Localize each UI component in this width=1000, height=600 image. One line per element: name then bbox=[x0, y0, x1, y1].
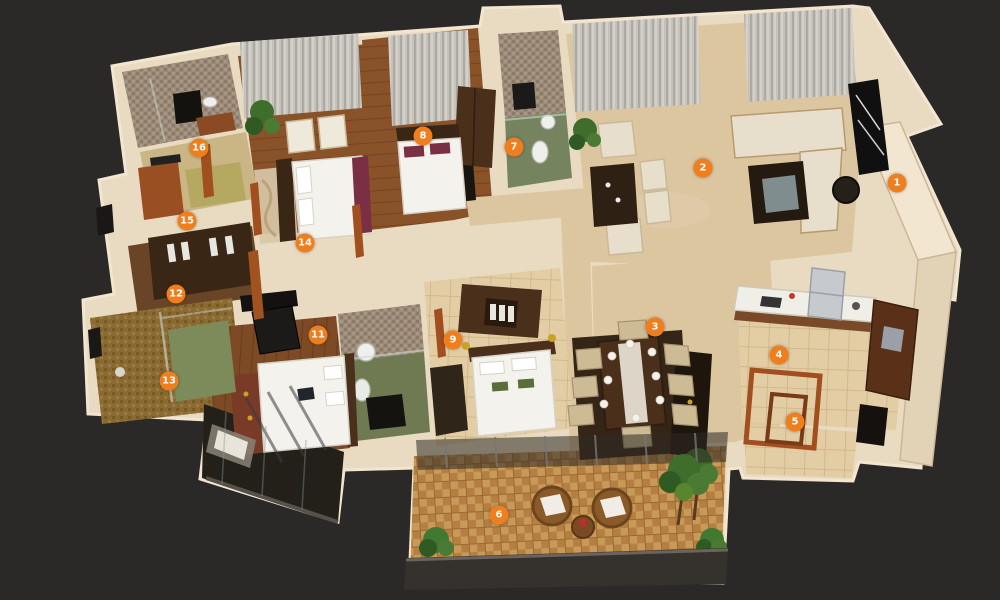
room-marker-15: 15 bbox=[178, 212, 197, 231]
room-marker-14: 14 bbox=[296, 234, 315, 253]
apartment-floor-plan-scene: 123456789111213141516 bbox=[0, 0, 1000, 600]
room-marker-2: 2 bbox=[694, 159, 713, 178]
room-marker-5: 5 bbox=[786, 413, 805, 432]
room-marker-8: 8 bbox=[414, 127, 433, 146]
room-marker-4: 4 bbox=[770, 346, 789, 365]
room-marker-3: 3 bbox=[646, 318, 665, 337]
room-marker-7: 7 bbox=[505, 138, 524, 157]
room-marker-13: 13 bbox=[160, 372, 179, 391]
room-marker-11: 11 bbox=[309, 326, 328, 345]
room-marker-12: 12 bbox=[167, 285, 186, 304]
room-marker-9: 9 bbox=[444, 331, 463, 350]
room-marker-6: 6 bbox=[490, 506, 509, 525]
room-marker-1: 1 bbox=[888, 174, 907, 193]
marker-layer: 123456789111213141516 bbox=[0, 0, 1000, 600]
room-marker-16: 16 bbox=[190, 139, 209, 158]
